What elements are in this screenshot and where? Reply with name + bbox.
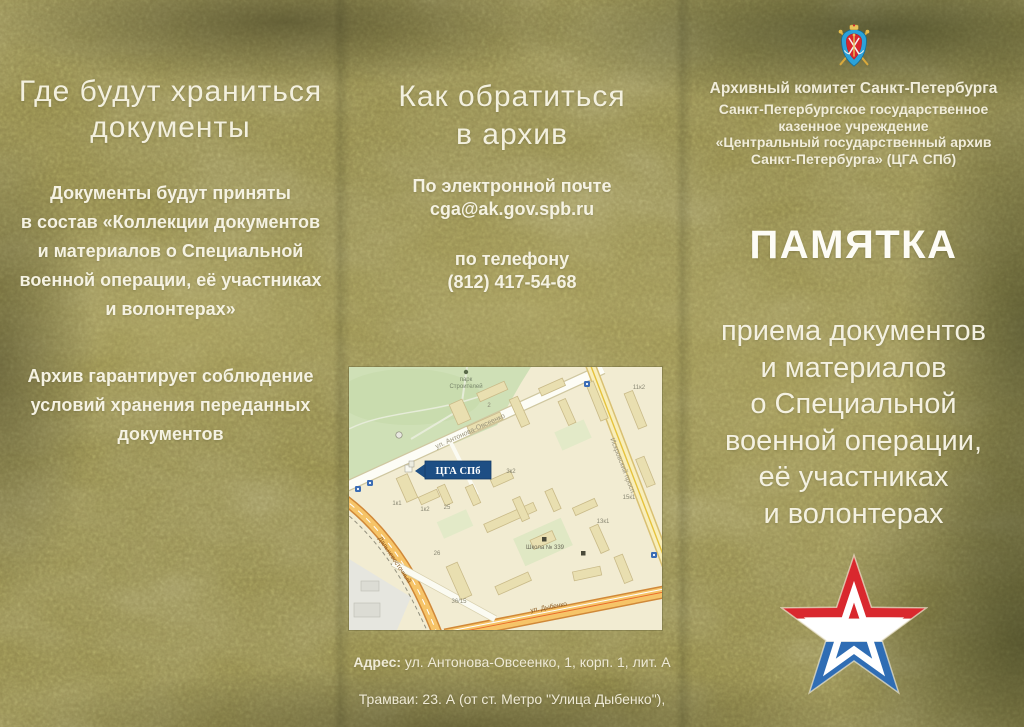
map-park-label-1: парк [460,377,473,383]
org-name-archive: Санкт-Петербургское государственное казе… [683,101,1024,167]
location-map: 1к1 1к2 25 2 3к2 26 36/15 13к1 11к2 15к1… [349,367,662,630]
svg-text:25: 25 [444,505,451,511]
svg-text:15к1: 15к1 [623,495,636,501]
address-street: ул. Антонова-Овсеенко, 1, корп. 1, лит. … [401,654,671,670]
map-school-icon [542,537,547,542]
army-star-emblem [780,552,928,700]
contact-phone: по телефону (812) 417-54-68 [341,248,683,294]
storage-heading: Где будут храниться документы [0,74,341,146]
map-park-icon [464,370,468,374]
svg-text:26: 26 [434,551,441,557]
org-name-committee: Архивный комитет Санкт-Петербурга [683,80,1024,98]
tricolor-star-icon [780,552,928,700]
svg-text:1к2: 1к2 [420,507,430,513]
map-marker-label: ЦГА СПб [436,466,481,477]
svg-text:11к2: 11к2 [633,385,646,391]
map-park-label-2: Строителей [449,383,482,390]
archive-committee-emblem [831,23,877,71]
brochure-page: Где будут храниться документы Документы … [0,0,1024,727]
svg-text:36/15: 36/15 [451,599,467,605]
coat-of-arms-icon [831,23,877,71]
contact-email: По электронной почте cga@ak.gov.spb.ru [341,175,683,221]
map-canvas: 1к1 1к2 25 2 3к2 26 36/15 13к1 11к2 15к1… [349,367,662,630]
brochure-subtitle: приема документов и материалов о Специал… [683,313,1024,532]
address-block: Адрес: ул. Антонова-Овсеенко, 1, корп. 1… [341,653,683,727]
svg-text:1к1: 1к1 [392,501,402,507]
svg-text:13к1: 13к1 [597,519,610,525]
address-trams-1: Трамваи: 23. А (от ст. Метро "Улица Дыбе… [359,691,665,707]
svg-text:3к2: 3к2 [506,469,516,475]
map-store-icon [581,551,586,556]
address-label: Адрес: [353,654,401,670]
panel-contact-info: Как обратиться в архив По электронной по… [341,0,683,727]
storage-paragraph-collection: Документы будут приняты в состав «Коллек… [0,179,341,324]
map-poi-icon [396,432,402,438]
map-school-label: Школа № 339 [526,544,565,551]
panel-storage-info: Где будут храниться документы Документы … [0,0,341,727]
panel-title: Архивный комитет Санкт-Петербурга Санкт-… [683,0,1024,727]
storage-paragraph-guarantee: Архив гарантирует соблюдение условий хра… [0,362,341,449]
contact-heading: Как обратиться в архив [341,78,683,154]
brochure-title: ПАМЯТКА [683,223,1024,268]
